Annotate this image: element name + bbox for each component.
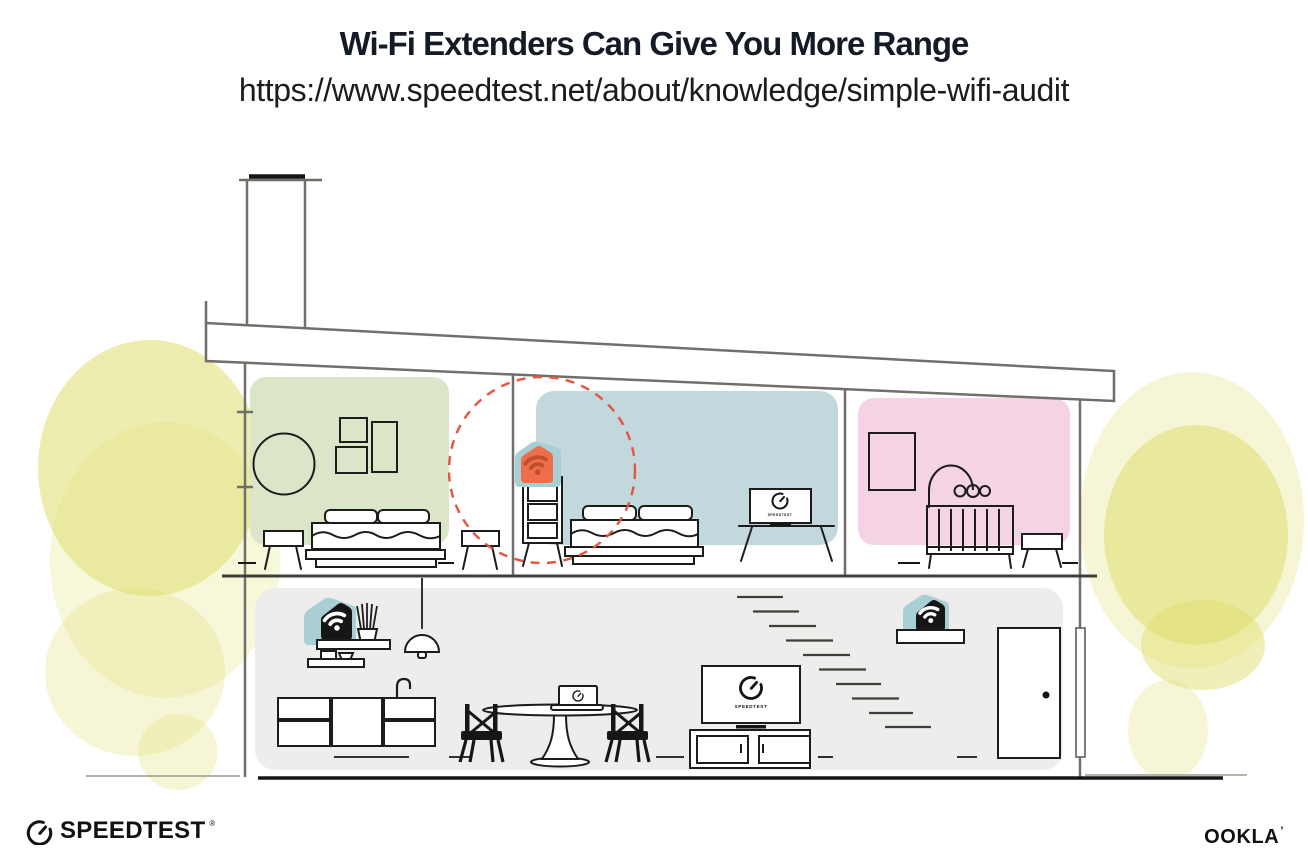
tree-right [1080, 372, 1304, 780]
infographic-canvas: Wi-Fi Extenders Can Give You More Range … [0, 0, 1308, 861]
tv-console [690, 730, 810, 768]
dresser [523, 477, 562, 566]
stool [1022, 534, 1062, 567]
living-room-tv-label: SPEEDTEST [735, 704, 768, 709]
extender-shelf [897, 630, 964, 643]
downspout [1076, 628, 1085, 757]
ookla-trademark-tick: ’ [1280, 825, 1284, 837]
ookla-logo: OOKLA ’ [1204, 826, 1284, 849]
house-illustration: SPEEDTEST [0, 0, 1308, 861]
laptop [551, 686, 603, 710]
bed-left [306, 510, 445, 567]
cup [321, 651, 336, 659]
bedroom-tv-label: SPEEDTEST [768, 513, 793, 517]
registered-mark: ® [209, 819, 215, 828]
tree-left [38, 340, 280, 790]
chimney [239, 177, 322, 334]
wall-shelf-upper [317, 640, 390, 649]
speedtest-logo: SPEEDTEST ® [26, 816, 215, 846]
bed-middle [565, 506, 703, 564]
wall-shelf-lower [308, 659, 364, 667]
speedtest-wordmark: SPEEDTEST [60, 816, 205, 846]
front-door [998, 628, 1060, 758]
ookla-wordmark: OOKLA [1204, 826, 1279, 849]
door-knob [1043, 692, 1050, 699]
wifi-extender-upstairs [515, 442, 561, 487]
nightstand-right [462, 531, 499, 569]
living-room-tv: SPEEDTEST [690, 666, 810, 768]
speedtest-gauge-icon [26, 818, 53, 845]
